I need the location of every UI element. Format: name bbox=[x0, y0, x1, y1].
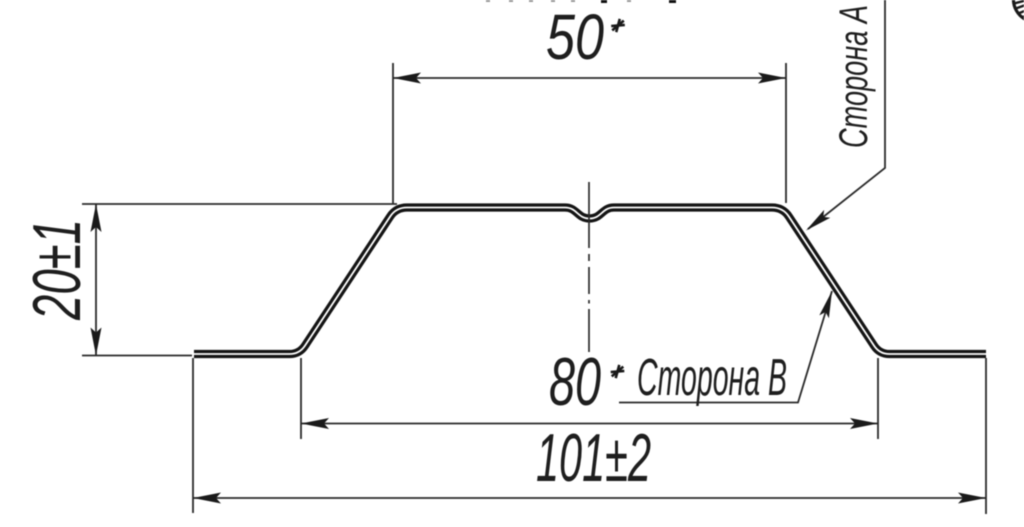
svg-text:80: 80 bbox=[549, 344, 601, 420]
svg-text:101±2: 101±2 bbox=[536, 420, 651, 496]
svg-text:20±1: 20±1 bbox=[19, 219, 95, 321]
svg-text:Сторона В: Сторона В bbox=[637, 349, 787, 407]
svg-text:50: 50 bbox=[546, 1, 604, 73]
svg-text:Сторона А: Сторона А bbox=[832, 5, 876, 148]
